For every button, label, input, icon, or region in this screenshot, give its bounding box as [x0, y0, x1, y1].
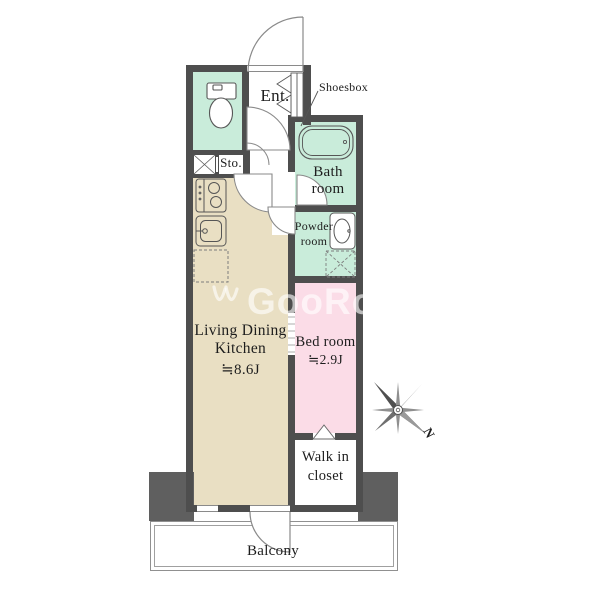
floorplan: N GooRooM Ent. Shoesbox Sto. Bath room P…: [0, 0, 600, 600]
wall-closet-left: [288, 440, 295, 512]
wall-bedroom-bottom-left: [288, 433, 313, 440]
wall-powder-bottom: [288, 276, 363, 283]
pillar-bottom-right: [358, 472, 398, 521]
wall-bedroom-left-upper: [288, 283, 295, 313]
entrance-doorway: [247, 65, 303, 72]
storage-label: Sto.: [216, 156, 246, 171]
wall-bedroom-bottom-right: [335, 433, 363, 440]
entrance-label: Ent.: [246, 86, 304, 106]
compass-rose-icon: [360, 370, 450, 460]
entrance-door-swing-arc-icon: [248, 17, 303, 72]
wall-ldk-bottom-1: [186, 505, 197, 512]
walk-in-closet-label: Walk in closet: [295, 448, 356, 486]
wall-closet-bottom: [288, 505, 363, 512]
toilet-room: [193, 72, 242, 150]
balcony-doorway: [250, 505, 290, 512]
bath-room-label: Bath room: [300, 164, 356, 198]
wall-top-left: [186, 65, 247, 72]
wall-bath-left: [288, 115, 295, 172]
wall-toilet-entrance: [242, 72, 249, 150]
powder-room-label: Powder room: [291, 219, 337, 249]
bedroom-label: Bed room ≒2.9J: [295, 334, 356, 368]
wall-ldk-bottom-2: [218, 505, 250, 512]
bedroom-size-label: ≒2.9J: [295, 352, 356, 368]
pipe-space: [193, 154, 216, 175]
wall-bath-powder-divider: [295, 205, 356, 212]
ldk-label: Living Dining Kitchen ≒8.6J: [193, 322, 288, 380]
ldk-size-label: ≒8.6J: [193, 362, 288, 380]
sliding-door: [288, 313, 295, 355]
balcony-label: Balcony: [150, 543, 396, 560]
wall-bedroom-left-lower: [288, 355, 295, 433]
ldk-window: [197, 505, 218, 512]
north-label: N: [419, 425, 438, 441]
hallway: [250, 148, 288, 176]
wall-left-outer: [186, 65, 193, 512]
wall-bath-top: [288, 115, 363, 122]
wall-right-outer: [356, 115, 363, 512]
shoesbox-label: Shoesbox: [319, 81, 389, 95]
